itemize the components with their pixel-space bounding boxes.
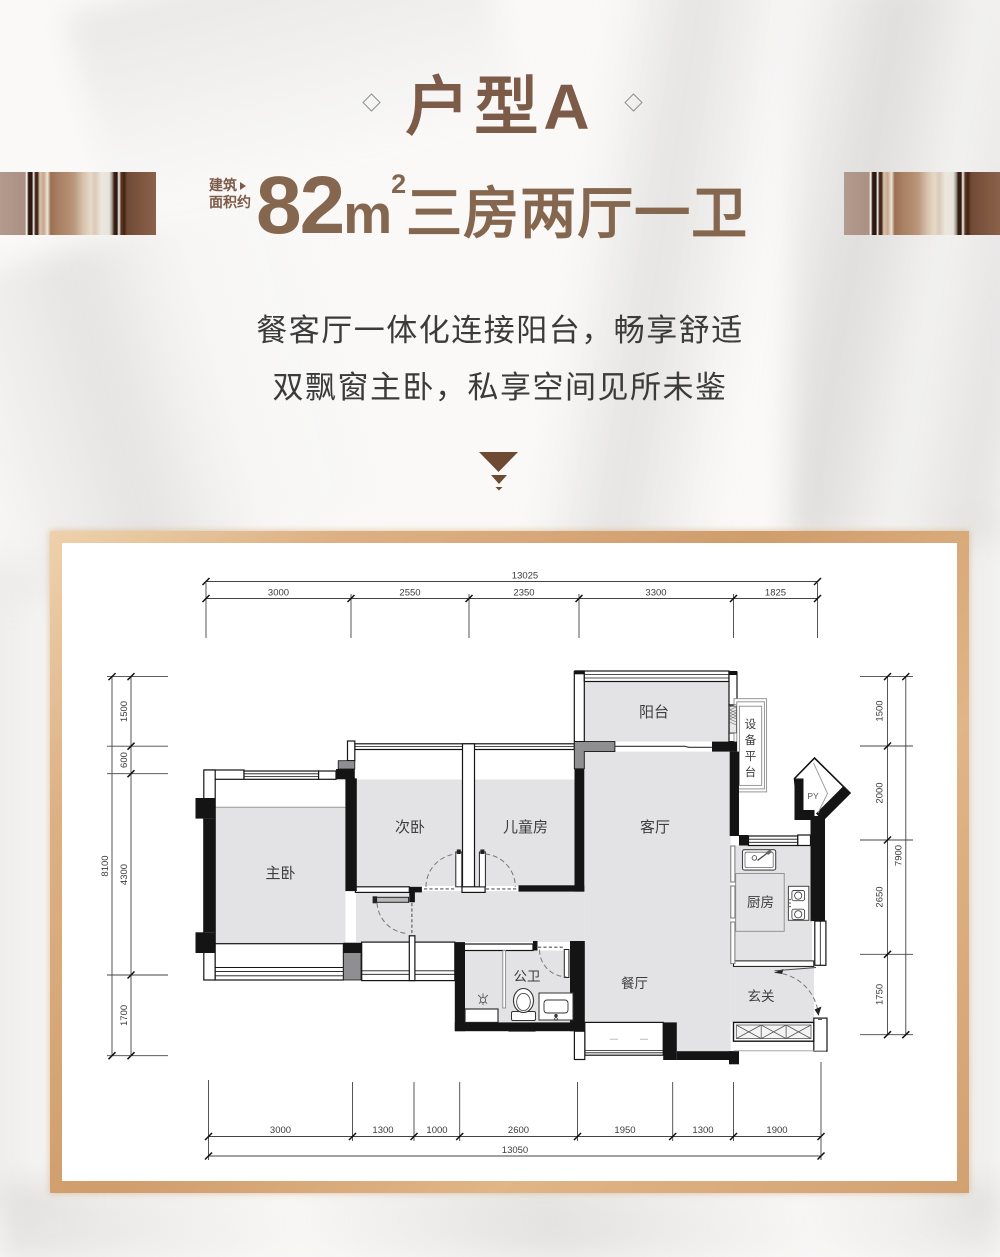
svg-text:1300: 1300 (372, 1125, 393, 1136)
svg-text:1300: 1300 (692, 1125, 713, 1136)
svg-text:2650: 2650 (875, 886, 886, 907)
svg-text:台: 台 (745, 765, 757, 779)
svg-text:1000: 1000 (426, 1125, 447, 1136)
svg-text:儿童房: 儿童房 (503, 818, 548, 836)
svg-text:13025: 13025 (512, 571, 538, 582)
svg-text:设: 设 (745, 718, 757, 731)
svg-text:1750: 1750 (875, 984, 886, 1005)
svg-text:2350: 2350 (513, 588, 534, 599)
svg-text:厨房: 厨房 (747, 895, 774, 910)
svg-text:7900: 7900 (894, 845, 905, 866)
svg-text:阳台: 阳台 (639, 704, 669, 721)
svg-text:PY: PY (807, 791, 819, 801)
svg-text:3000: 3000 (268, 588, 289, 599)
svg-text:1825: 1825 (765, 588, 786, 599)
svg-text:2000: 2000 (875, 782, 886, 803)
svg-text:3300: 3300 (645, 588, 666, 599)
svg-text:1700: 1700 (119, 1005, 130, 1026)
svg-text:600: 600 (119, 752, 130, 768)
svg-text:餐厅: 餐厅 (621, 976, 648, 991)
svg-text:2550: 2550 (399, 588, 420, 599)
svg-text:1500: 1500 (875, 700, 886, 721)
svg-text:玄关: 玄关 (748, 988, 775, 1004)
svg-text:2600: 2600 (508, 1125, 529, 1136)
svg-text:客厅: 客厅 (640, 819, 670, 836)
svg-text:公卫: 公卫 (514, 969, 541, 984)
svg-text:1500: 1500 (119, 701, 130, 722)
svg-text:平: 平 (745, 751, 757, 763)
svg-text:主卧: 主卧 (265, 865, 295, 882)
svg-text:3000: 3000 (270, 1125, 291, 1136)
svg-text:备: 备 (745, 733, 757, 747)
svg-text:1950: 1950 (614, 1125, 635, 1136)
svg-text:1900: 1900 (766, 1125, 787, 1136)
svg-text:次卧: 次卧 (395, 819, 425, 836)
svg-text:4300: 4300 (119, 864, 130, 885)
svg-text:8100: 8100 (100, 855, 111, 876)
svg-text:13050: 13050 (502, 1145, 528, 1156)
